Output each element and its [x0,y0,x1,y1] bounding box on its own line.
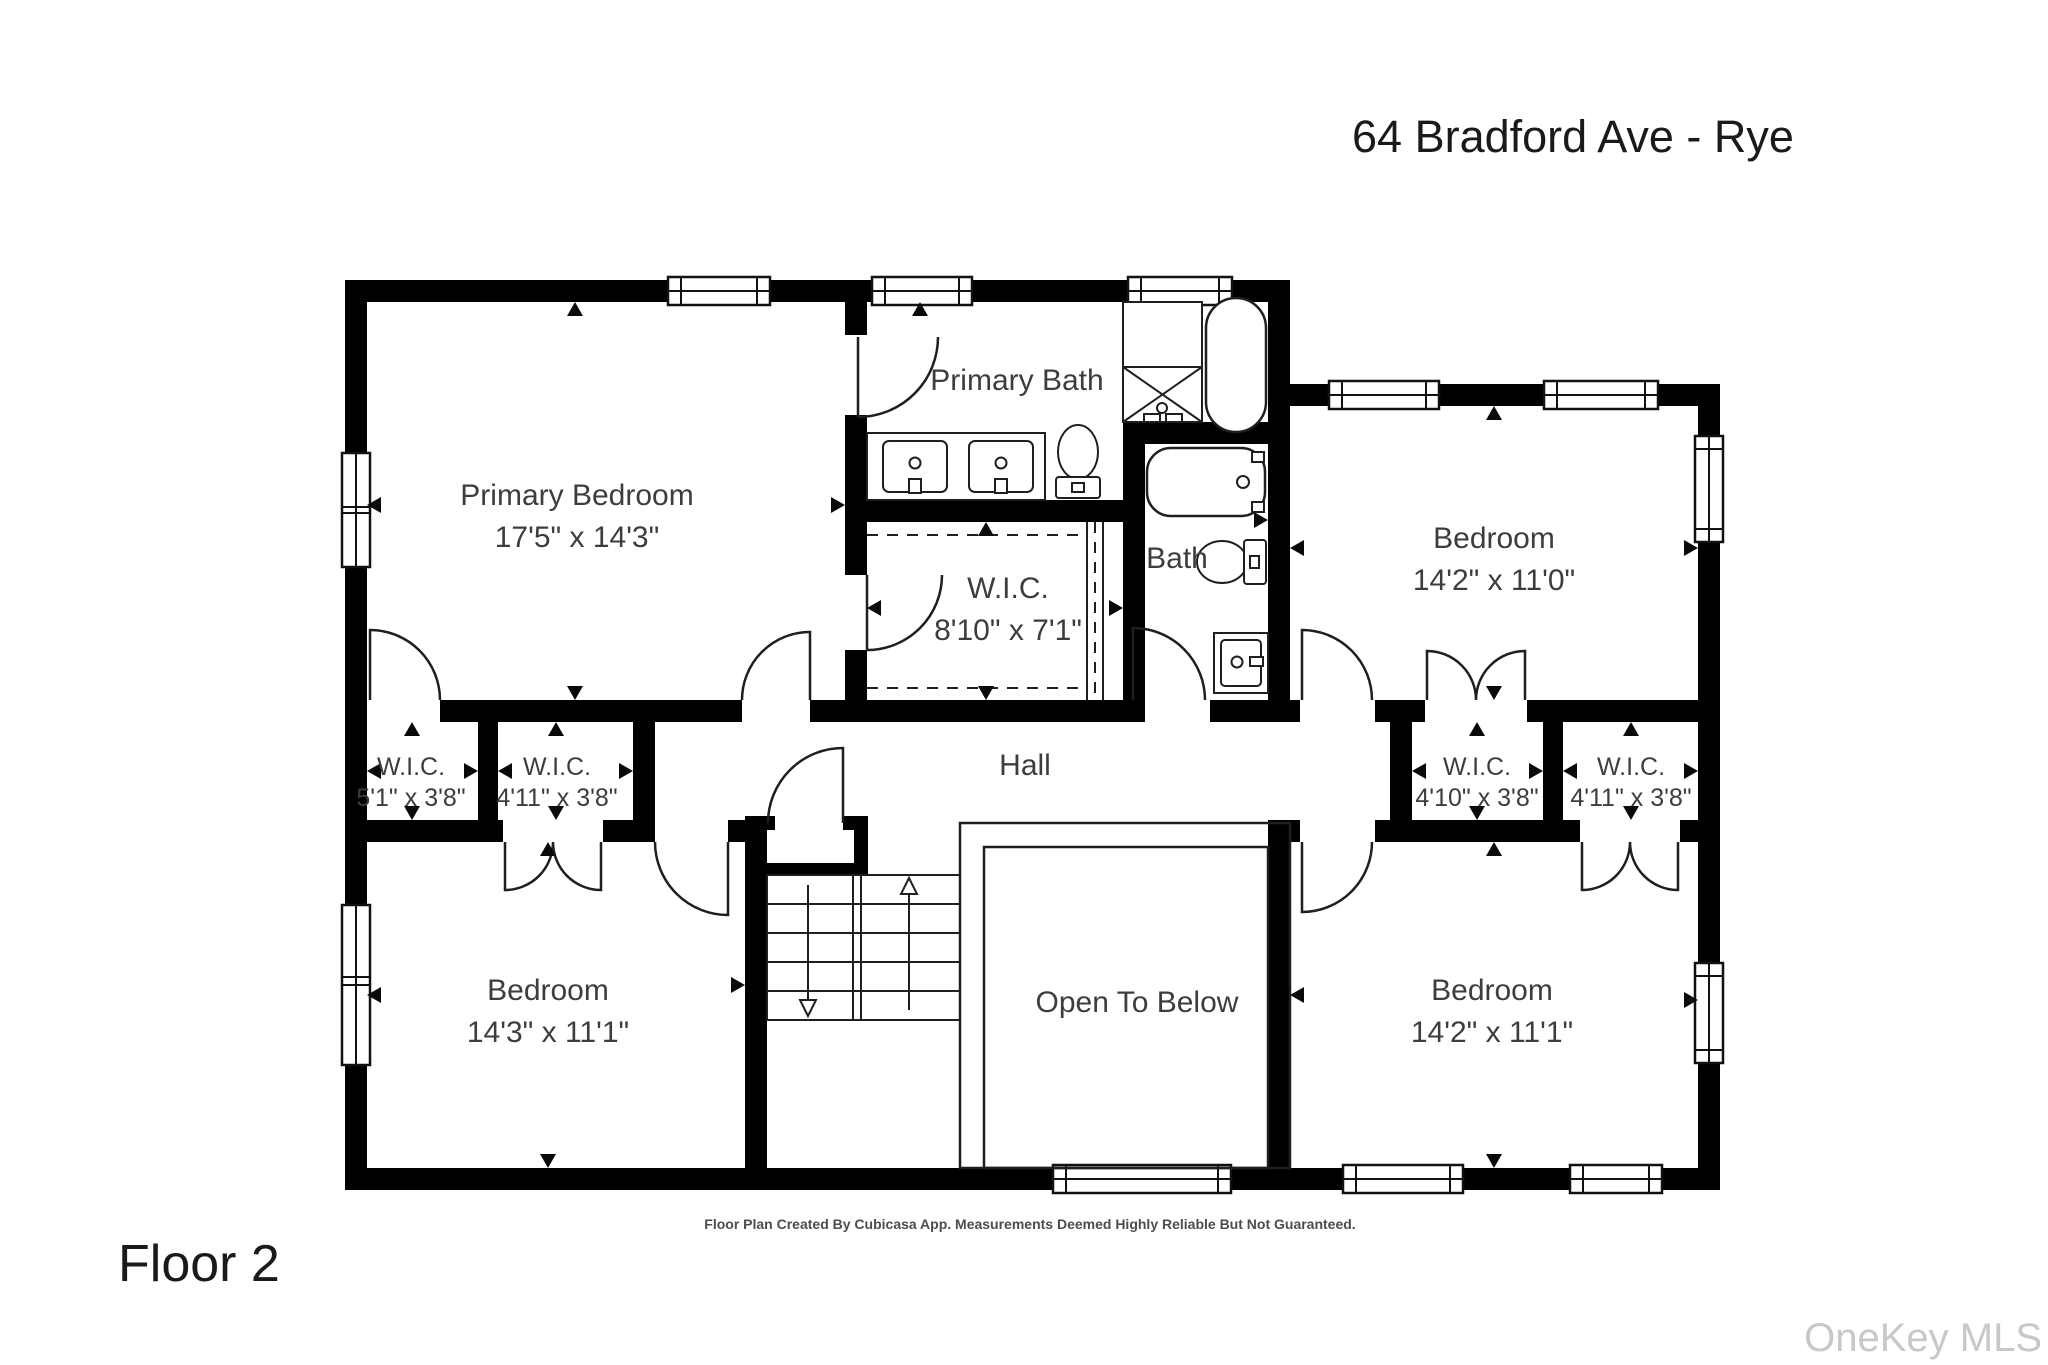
room-label-bath: Bath [1146,542,1208,575]
closet-rod-lines [867,522,1103,700]
door-bedroom-bottom-right [1302,842,1372,912]
window [1544,381,1658,409]
floorplan-page: Primary Bedroom 17'5" x 14'3" Primary Ba… [0,0,2048,1365]
bathtub-icon [1206,298,1266,432]
window [1570,1165,1662,1193]
window [1343,1165,1463,1193]
door-primary-bath [858,337,938,417]
toilet-icon [1056,425,1100,498]
window [1329,381,1439,409]
room-label-hall: Hall [999,749,1051,782]
window [342,453,370,567]
window [342,905,370,1065]
double-door-wic-right-2 [1582,842,1678,890]
room-label-bedroom-bottom-left: Bedroom [487,974,609,1007]
floor-label: Floor 2 [118,1235,280,1293]
room-dims-wic-right-2: 4'11" x 3'8" [1570,784,1691,812]
room-label-bedroom-bottom-right: Bedroom [1431,974,1553,1007]
room-label-primary-bath: Primary Bath [930,364,1103,397]
room-dims-primary-bedroom: 17'5" x 14'3" [495,521,660,554]
page-title: 64 Bradford Ave - Rye [1352,111,1794,162]
room-label-wic-left-2: W.I.C. [523,753,591,781]
door-wic-5-1 [370,630,440,700]
room-label-primary-bedroom: Primary Bedroom [460,479,693,512]
window [1128,277,1232,305]
disclaimer-text: Floor Plan Created By Cubicasa App. Meas… [704,1216,1355,1232]
stairs [767,875,960,1020]
room-label-wic-right-1: W.I.C. [1443,753,1511,781]
room-dims-wic-left-2: 4'11" x 3'8" [496,784,617,812]
double-vanity-icon [867,433,1045,500]
room-label-wic-main: W.I.C. [967,572,1049,605]
door-stair-closet [768,748,843,823]
window [872,277,972,305]
door-primary-bedroom [742,632,810,700]
double-door-wic-left-2 [505,842,601,890]
door-bedroom-top-right [1302,630,1372,700]
room-label-open-to-below: Open To Below [1036,986,1239,1019]
room-dims-wic-left-1: 5'1" x 3'8" [356,784,465,812]
shower-icon [1123,302,1202,422]
room-dims-bedroom-bottom-right: 14'2" x 11'1" [1411,1016,1573,1049]
sink-icon [1214,633,1268,693]
room-label-wic-left-1: W.I.C. [377,753,445,781]
window [668,277,770,305]
room-dims-wic-main: 8'10" x 7'1" [934,614,1082,647]
window [1695,963,1723,1063]
room-dims-bedroom-top-right: 14'2" x 11'0" [1413,564,1575,597]
double-door-wic-right-1 [1427,651,1525,700]
watermark: OneKey MLS [1804,1316,2042,1360]
room-dims-wic-right-1: 4'10" x 3'8" [1415,784,1538,812]
room-label-wic-right-2: W.I.C. [1597,753,1665,781]
room-dims-bedroom-bottom-left: 14'3" x 11'1" [467,1016,629,1049]
room-label-bedroom-top-right: Bedroom [1433,522,1555,555]
bathtub-icon [1147,448,1265,516]
door-bedroom-bottom-left [655,842,728,915]
floorplan-svg: Primary Bedroom 17'5" x 14'3" Primary Ba… [0,0,2048,1365]
window [1695,436,1723,542]
